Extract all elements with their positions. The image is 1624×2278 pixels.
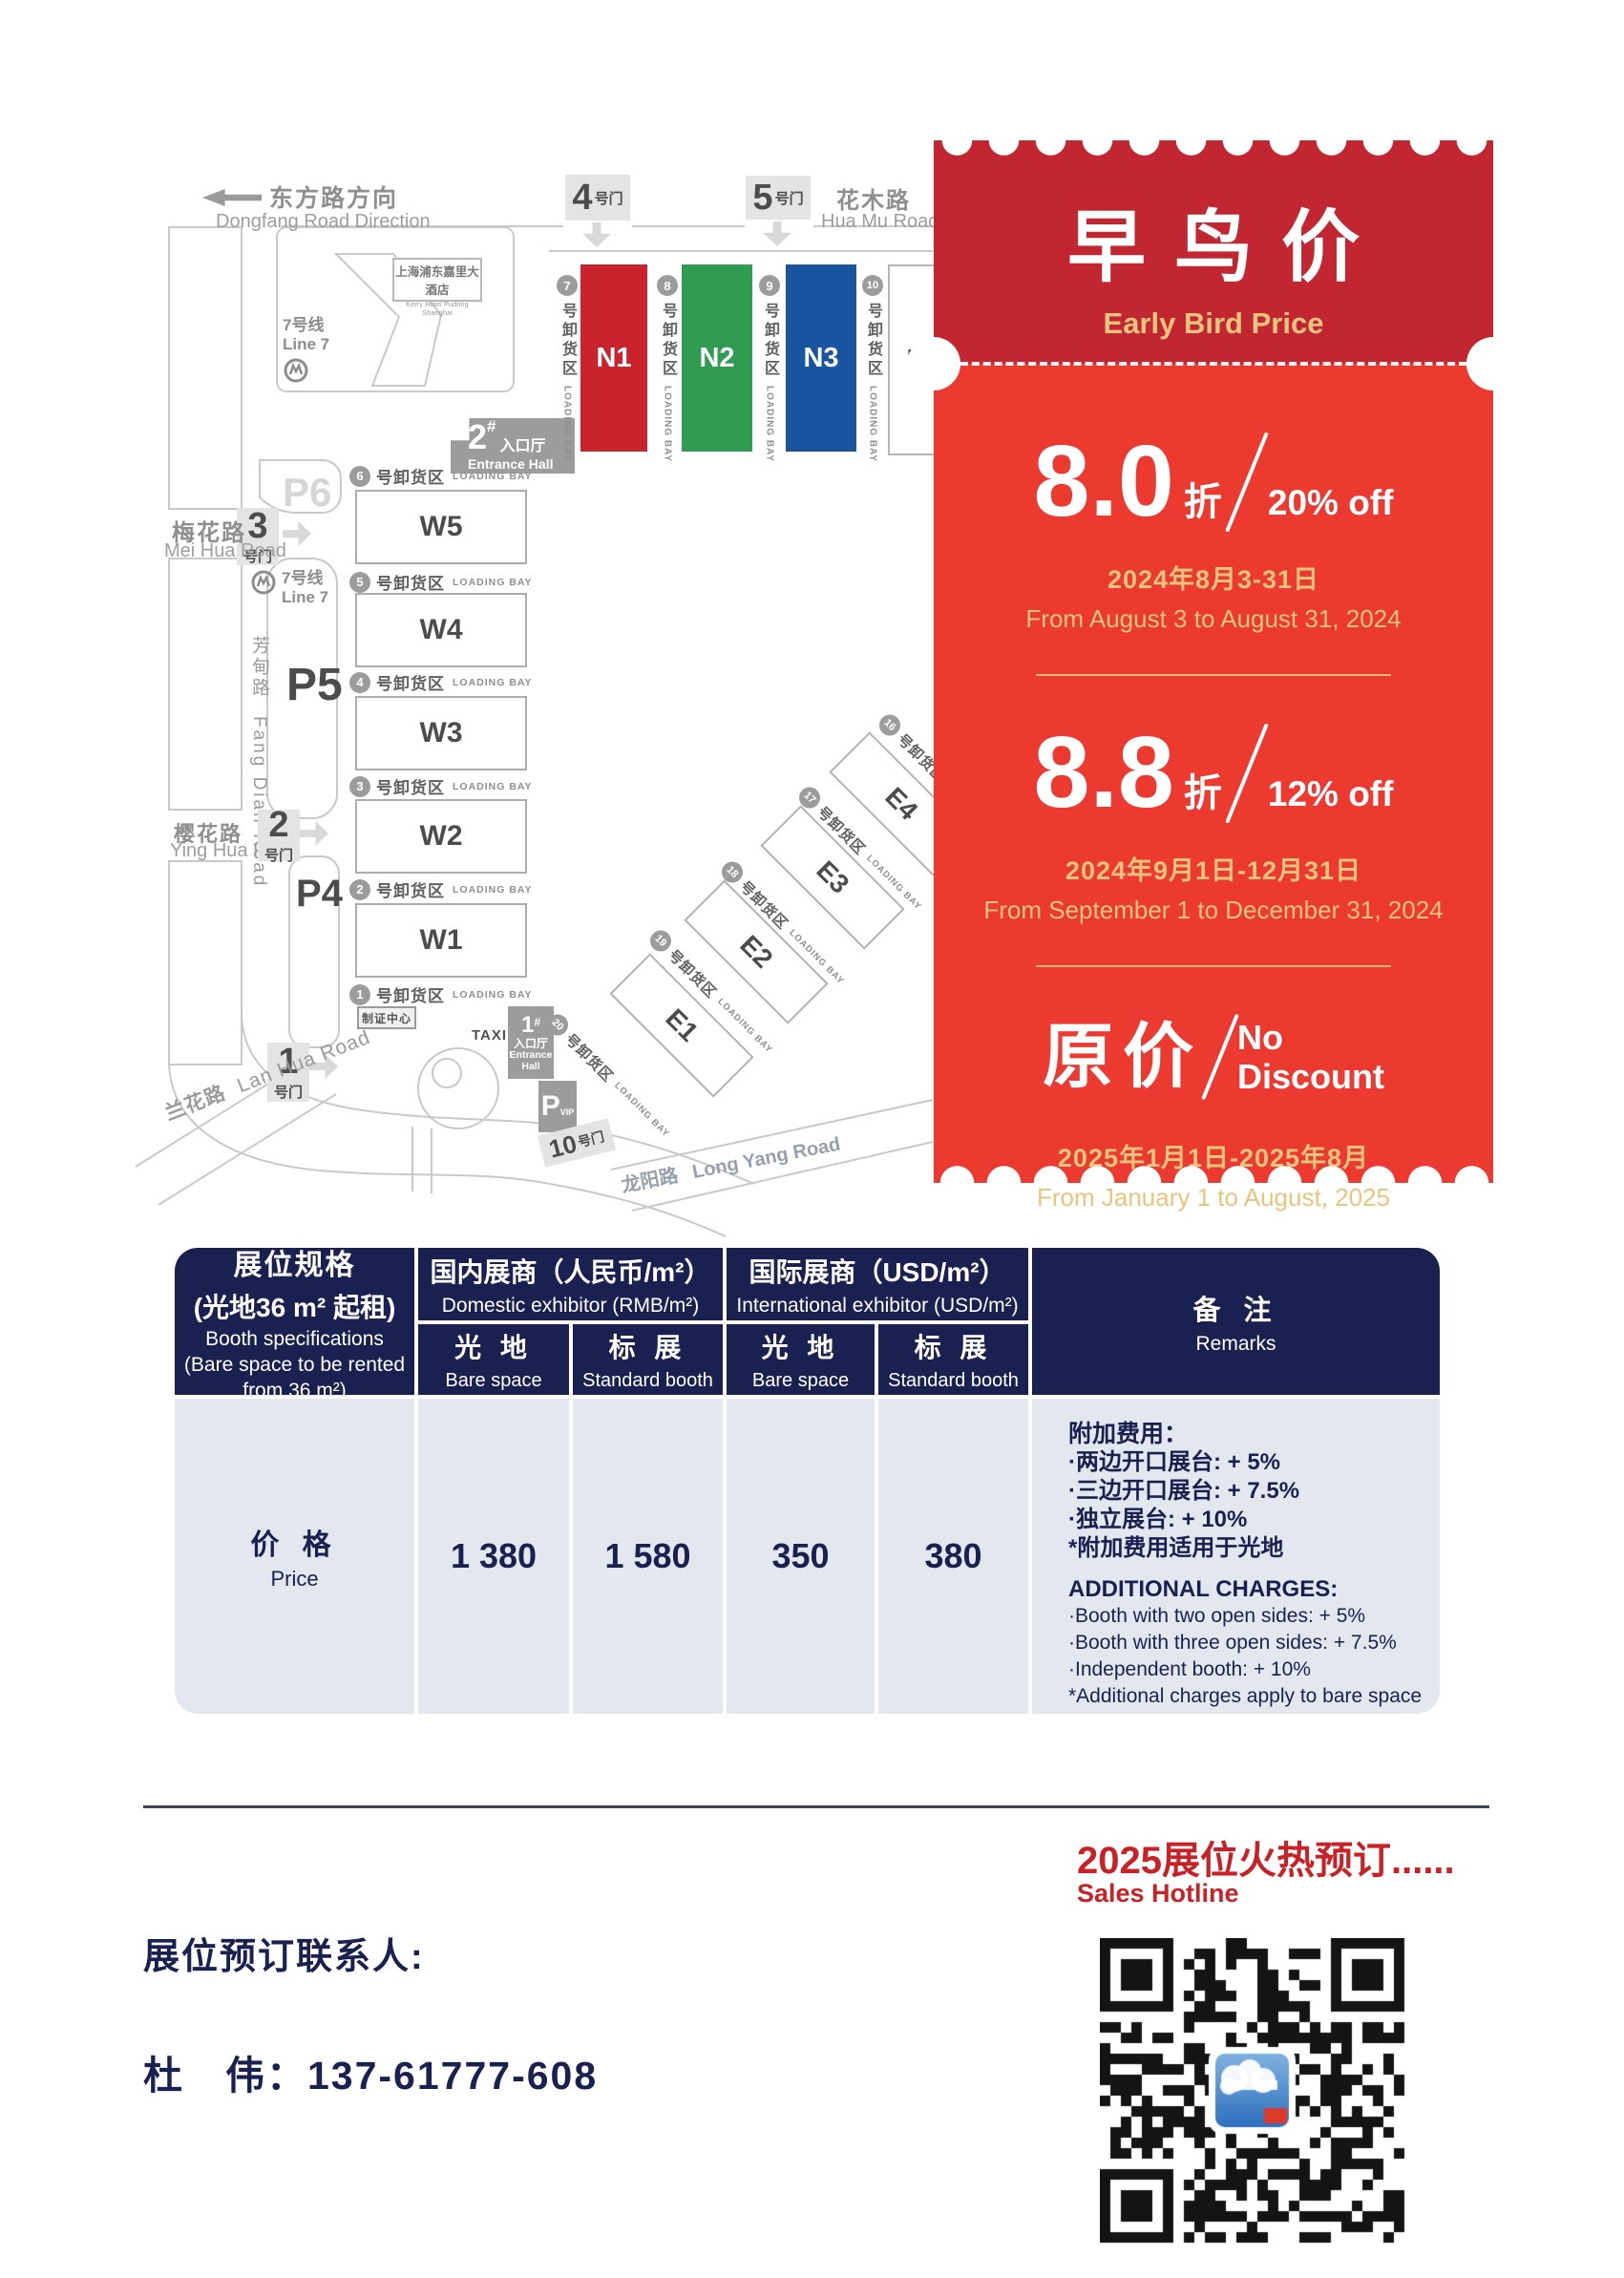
early-bird-ticket: 早鸟价 Early Bird Price 8.0 折 20% off 2024年… (934, 140, 1493, 1183)
huamu-road-label-cn: 花木路 (836, 181, 911, 215)
gold-divider (1036, 674, 1391, 676)
entrance-hall-1: 1# 入口厅 Entrance Hall (508, 1006, 554, 1079)
ticket-scallop-top (934, 140, 1493, 169)
gate-4: 4 号门 (565, 175, 630, 221)
gate-5: 5 号门 (746, 176, 811, 220)
price-row-label: 价 格 Price (175, 1399, 414, 1714)
metro-logo-icon (250, 569, 277, 596)
slash-divider (1201, 1014, 1239, 1101)
hall-n1: N1 (580, 264, 647, 452)
booking-contact-heading: 展位预订联系人: (143, 1927, 425, 1979)
loading-bay-1: 1 号卸货区 LOADING BAY (349, 982, 533, 1006)
international-bare-space-header: 光 地 Bare space (727, 1324, 875, 1395)
domestic-bare-space-header: 光 地 Bare space (418, 1324, 569, 1395)
remarks-cn-items: ·两边开口展台: + 5%·三边开口展台: + 7.5%·独立展台: + 10% (1068, 1448, 1299, 1534)
loading-bay-3: 3 号卸货区 LOADING BAY (349, 774, 533, 798)
ticket-body: 8.0 折 20% off 2024年8月3-31日 From August 3… (934, 364, 1493, 1183)
booth-spec-header: 展位规格 (光地36 m² 起租) Booth specifications (… (175, 1248, 414, 1395)
loading-bay-9: 9 号卸货区 LOADING BAY (758, 275, 781, 462)
meihua-road-label-en: Mei Hua Road (164, 540, 286, 562)
slash-divider (1225, 432, 1269, 532)
ticket-notch-right (1466, 337, 1520, 390)
price-table: 展位规格 (光地36 m² 起租) Booth specifications (… (175, 1248, 1440, 1714)
tier-1: 8.0 折 20% off 2024年8月3-31日 From August 3… (934, 364, 1493, 634)
hall-w2: W2 (355, 799, 527, 874)
domestic-exhibitor-header: 国内展商（人民币/m²） Domestic exhibitor (RMB/m²) (418, 1248, 723, 1320)
loading-bay-6: 6 号卸货区 LOADING BAY (349, 464, 533, 488)
tier-2: 8.8 折 12% off 2024年9月1日-12月31日 From Sept… (934, 720, 1493, 925)
price-international-standard: 380 (878, 1399, 1028, 1714)
remarks-body: 附加费用： ·两边开口展台: + 5%·三边开口展台: + 7.5%·独立展台:… (1032, 1399, 1440, 1714)
ticket-notch-left (907, 337, 960, 390)
taxi-label: TAXI (472, 1027, 507, 1044)
ticket-dashed-line (960, 362, 1466, 366)
sales-hotline-subtitle: Sales Hotline (1077, 1879, 1239, 1909)
gold-divider (1036, 965, 1391, 967)
hall-w3: W3 (355, 696, 527, 770)
loading-bay-7: 7 号卸货区 LOADING BAY (556, 275, 579, 462)
qr-code (1100, 1938, 1405, 2244)
hall-w5: W5 (355, 490, 527, 564)
price-domestic-bare: 1 380 (418, 1399, 569, 1714)
ticket-subtitle: Early Bird Price (934, 306, 1493, 341)
gate-2: 2 号门 (258, 810, 300, 861)
dongfang-road-label-en: Dongfang Road Direction (216, 211, 431, 233)
kerry-hotel-label: 上海浦东嘉里大酒店 Kerry Hotel Pudong Shanghai (394, 262, 480, 300)
ticket-header: 早鸟价 Early Bird Price (934, 140, 1493, 364)
metro-line7-upper: 7号线 Line 7 (283, 316, 329, 384)
hall-w1: W1 (355, 903, 527, 978)
footer-divider (143, 1805, 1489, 1808)
slash-divider (1225, 723, 1269, 823)
price-international-bare: 350 (727, 1399, 875, 1714)
parking-p4-label: P4 (296, 873, 343, 916)
hall-n2: N2 (682, 264, 752, 452)
flyer-page: 东方路方向 Dongfang Road Direction 4 号门 5 号门 … (0, 0, 1624, 2278)
sales-hotline-title: 2025展位火热预订...... (1077, 1829, 1455, 1885)
remarks-en-items: ·Booth with two open sides: + 5%·Booth w… (1068, 1603, 1397, 1683)
dongfang-road-label-cn: 东方路方向 (269, 179, 398, 214)
price-domestic-standard: 1 580 (573, 1399, 723, 1714)
badge-center: 制证中心 (357, 1006, 416, 1029)
remarks-header: 备 注 Remarks (1032, 1248, 1440, 1395)
huamu-road-label-en: Hua Mu Road (821, 211, 939, 233)
loading-bay-2: 2 号卸货区 LOADING BAY (349, 877, 533, 901)
loading-bay-10: 10 号卸货区 LOADING BAY (861, 275, 884, 462)
ticket-scallop-bottom (934, 1150, 1493, 1183)
loading-bay-4: 4 号卸货区 LOADING BAY (349, 670, 533, 694)
metro-line7-lower: 7号线 Line 7 (250, 569, 328, 606)
loading-bay-5: 5 号卸货区 LOADING BAY (349, 570, 533, 594)
parking-vip: P VIP (538, 1081, 577, 1132)
international-standard-booth-header: 标 展 Standard booth (878, 1324, 1028, 1395)
parking-p5-label: P5 (286, 659, 343, 711)
loading-bay-8: 8 号卸货区 LOADING BAY (656, 275, 679, 462)
metro-logo-icon (283, 357, 309, 384)
parking-p6-label: P6 (283, 470, 331, 516)
international-exhibitor-header: 国际展商（USD/m²） International exhibitor (US… (727, 1248, 1028, 1320)
domestic-standard-booth-header: 标 展 Standard booth (573, 1324, 723, 1395)
hall-n3: N3 (786, 264, 856, 452)
booking-contact-phone: 杜 伟：137-61777-608 (143, 2043, 598, 2100)
hall-w4: W4 (355, 593, 527, 667)
